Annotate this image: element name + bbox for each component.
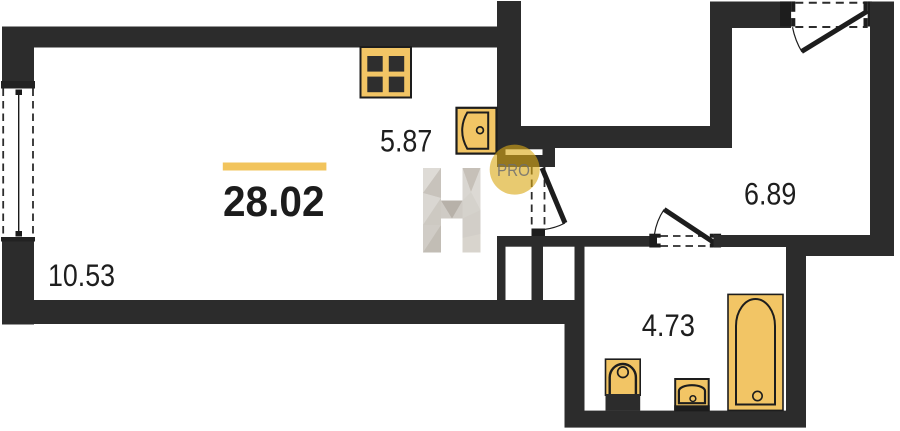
svg-text:PRO: PRO	[497, 160, 530, 180]
svg-text:5.87: 5.87	[380, 123, 432, 159]
svg-text:28.02: 28.02	[223, 179, 325, 226]
svg-text:6.89: 6.89	[744, 176, 796, 212]
svg-text:10.53: 10.53	[48, 257, 115, 293]
svg-text:4.73: 4.73	[642, 307, 695, 343]
